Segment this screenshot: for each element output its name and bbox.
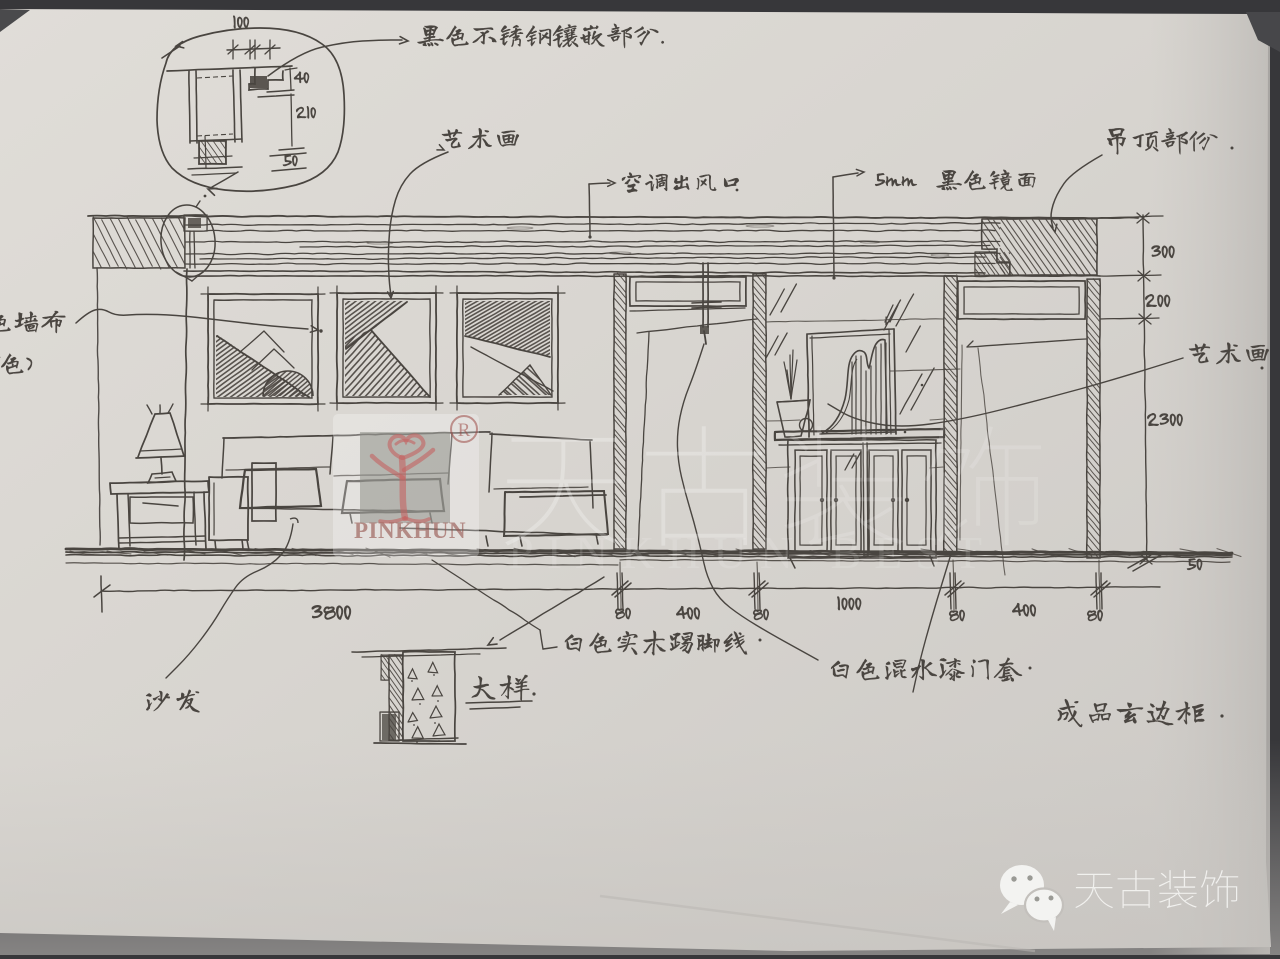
svg-text:PINKHUN BEST: PINKHUN BEST (508, 527, 995, 578)
svg-text:R: R (458, 420, 471, 441)
svg-text:PINKHUN: PINKHUN (354, 518, 466, 543)
